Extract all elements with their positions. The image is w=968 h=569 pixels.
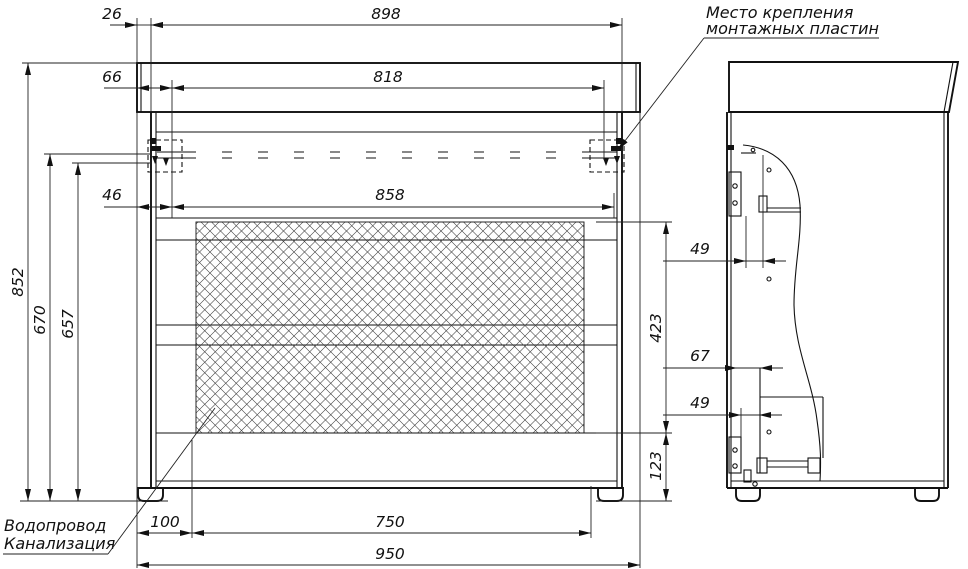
- dimension-26: 26: [102, 5, 166, 25]
- countertop-side: [729, 62, 958, 112]
- mounting-rail: [157, 152, 617, 158]
- dimension-67: 67: [663, 347, 783, 368]
- front-view: 26 898 66 818 46 858: [9, 5, 672, 568]
- side-panel-profile-curve: [743, 145, 821, 481]
- dim-950-label: 950: [375, 545, 405, 563]
- drawer-opening-hatch: [196, 222, 584, 433]
- side-view: 49 67 49: [663, 62, 958, 501]
- dim-46-label: 46: [102, 186, 122, 204]
- drawer-slide-upper: [759, 196, 801, 212]
- water-supply-label: Водопровод: [4, 516, 106, 535]
- dim-49-bottom-label: 49: [690, 394, 710, 412]
- dim-423-label: 423: [647, 313, 665, 343]
- mounting-callout-line2: монтажных пластин: [706, 19, 879, 38]
- dim-670-label: 670: [31, 305, 49, 335]
- foot-side-right: [915, 488, 939, 501]
- dim-26-label: 26: [102, 5, 122, 23]
- dimension-49-top: 49: [663, 240, 786, 261]
- dimension-852: 852: [9, 63, 28, 501]
- foot-front-right: [598, 488, 623, 501]
- drawer-structure-lower: [744, 368, 823, 482]
- dim-750-label: 750: [375, 513, 405, 531]
- dimension-423: 423: [647, 222, 666, 433]
- wall-fixing-mark: [727, 145, 734, 150]
- dimension-670: 670: [31, 154, 50, 501]
- mounting-plate-right: [590, 138, 624, 172]
- dim-49-top-label: 49: [690, 240, 710, 258]
- dimension-858: 858: [172, 186, 614, 207]
- dimension-750: 750: [192, 513, 591, 533]
- dim-123-label: 123: [647, 451, 665, 481]
- dimension-123: 123: [647, 433, 666, 501]
- foot-front-left: [138, 488, 163, 501]
- cabinet-dimension-drawing: 26 898 66 818 46 858: [0, 0, 968, 569]
- dim-858-label: 858: [375, 186, 405, 204]
- screw-holes: [751, 148, 771, 486]
- dim-100-label: 100: [150, 513, 180, 531]
- dimension-950: 950: [137, 545, 640, 565]
- dim-66-label: 66: [102, 68, 122, 86]
- sewerage-label: Канализация: [4, 534, 116, 553]
- dim-657-label: 657: [59, 309, 77, 339]
- dim-898-label: 898: [371, 5, 401, 23]
- foot-side-left: [736, 488, 760, 501]
- dim-818-label: 818: [373, 68, 403, 86]
- mounting-plate-left: [148, 138, 182, 172]
- dim-852-label: 852: [9, 267, 27, 297]
- dimension-898: 898: [151, 5, 622, 25]
- dimension-100: 100: [137, 513, 192, 533]
- technical-drawing-page: 26 898 66 818 46 858: [0, 0, 968, 569]
- dimension-657: 657: [59, 163, 78, 501]
- dim-67-label: 67: [690, 347, 710, 365]
